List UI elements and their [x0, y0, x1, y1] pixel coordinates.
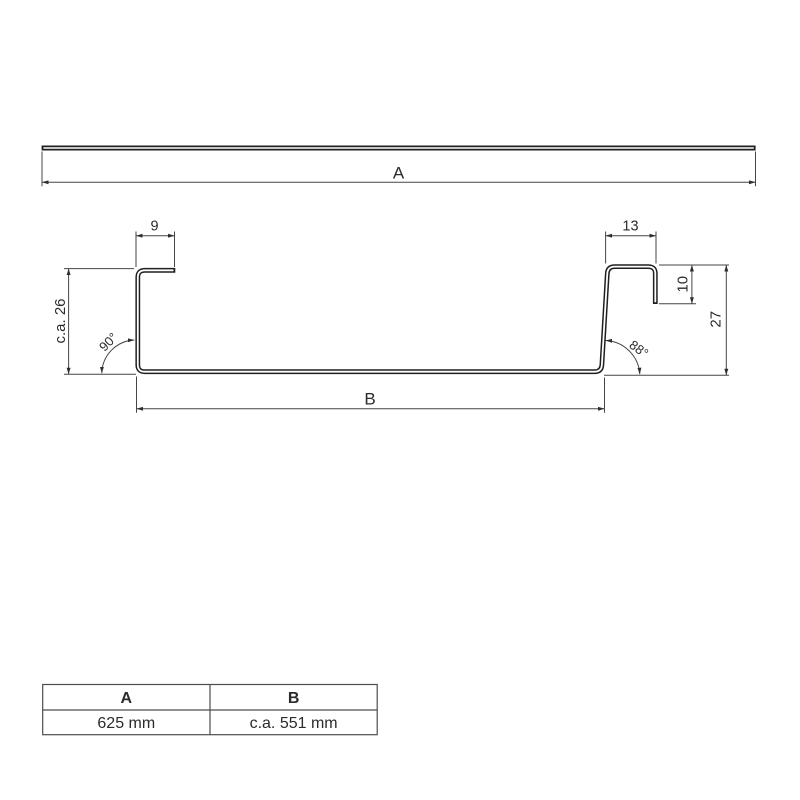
svg-text:B: B	[364, 390, 375, 409]
svg-text:A: A	[393, 164, 405, 183]
svg-text:625 mm: 625 mm	[97, 715, 155, 732]
svg-text:88°: 88°	[626, 337, 651, 361]
svg-text:13: 13	[622, 219, 638, 235]
svg-text:90°: 90°	[96, 330, 120, 355]
svg-text:c.a. 26: c.a. 26	[52, 298, 69, 343]
svg-text:A: A	[121, 690, 133, 707]
svg-text:B: B	[288, 690, 300, 707]
svg-text:27: 27	[708, 311, 725, 328]
svg-text:10: 10	[675, 276, 692, 293]
svg-text:c.a. 551 mm: c.a. 551 mm	[250, 715, 338, 732]
svg-text:9: 9	[150, 219, 158, 235]
